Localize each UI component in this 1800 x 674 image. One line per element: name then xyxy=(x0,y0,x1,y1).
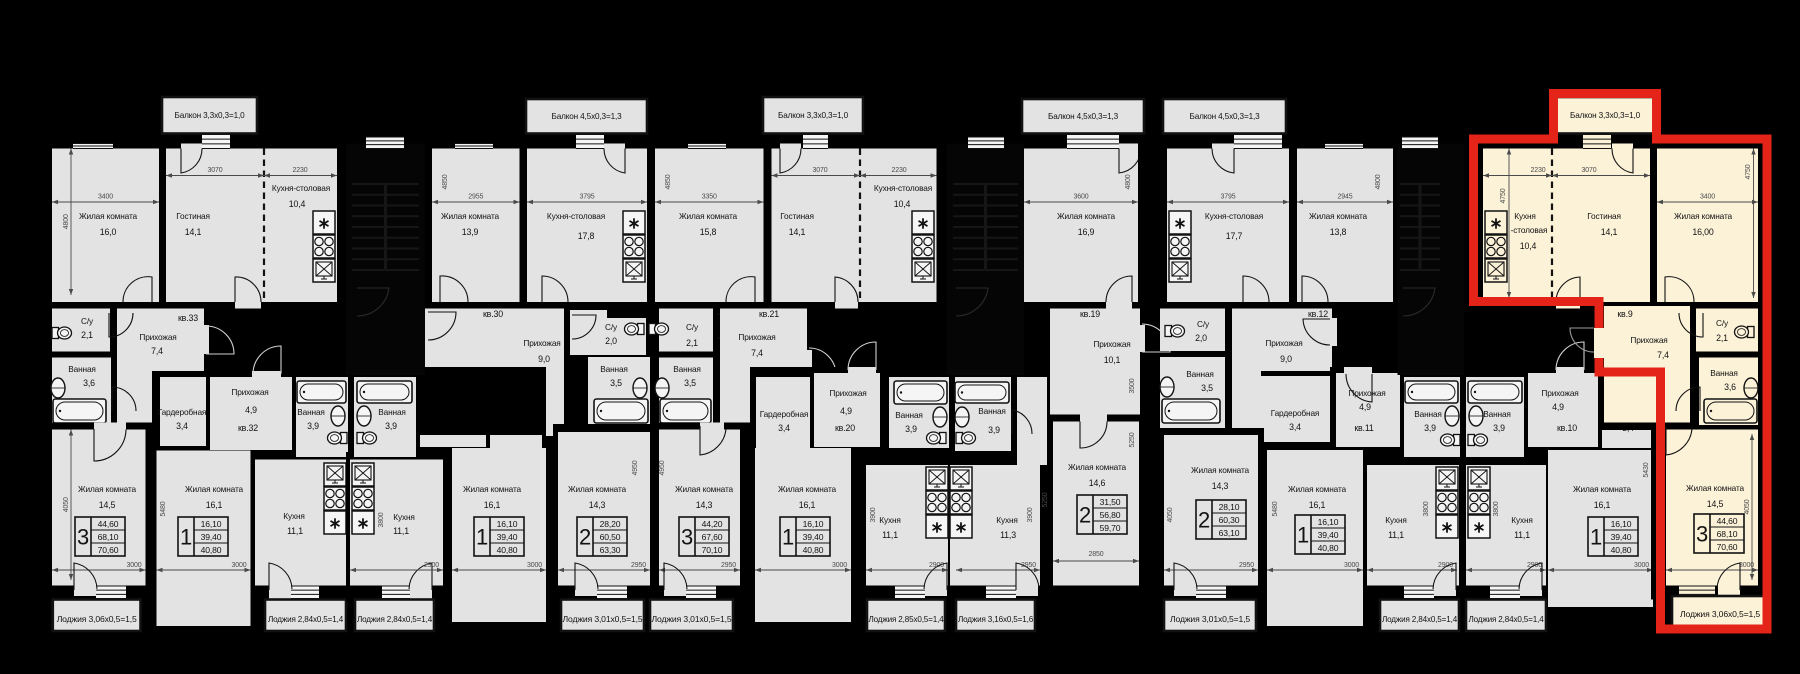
svg-text:3070: 3070 xyxy=(813,167,828,174)
svg-text:Лоджия 3,16х0,5=1,6: Лоджия 3,16х0,5=1,6 xyxy=(958,615,1034,624)
svg-text:С/у: С/у xyxy=(81,316,94,326)
svg-text:7,4: 7,4 xyxy=(1657,350,1669,360)
svg-text:Жилая комната: Жилая комната xyxy=(675,484,734,494)
svg-text:7,4: 7,4 xyxy=(151,346,163,356)
svg-text:Кухня: Кухня xyxy=(996,515,1017,525)
svg-text:Прихожая: Прихожая xyxy=(1630,335,1667,345)
svg-text:Лоджия 3,01х0,5=1,5: Лоджия 3,01х0,5=1,5 xyxy=(563,614,643,624)
svg-text:кв.11: кв.11 xyxy=(1354,423,1374,433)
svg-text:Гостиная: Гостиная xyxy=(176,211,210,221)
svg-text:3,9: 3,9 xyxy=(1493,423,1505,433)
svg-text:2850: 2850 xyxy=(1089,551,1104,558)
svg-text:Гостиная: Гостиная xyxy=(780,211,814,221)
svg-text:14,1: 14,1 xyxy=(1601,227,1618,237)
svg-text:Балкон 3,3х0,3=1,0: Балкон 3,3х0,3=1,0 xyxy=(1570,111,1641,120)
svg-text:4800: 4800 xyxy=(1125,174,1132,189)
svg-text:16,10: 16,10 xyxy=(497,519,518,529)
svg-text:Лоджия 2,84х0,5=1,4: Лоджия 2,84х0,5=1,4 xyxy=(1468,615,1544,624)
svg-text:Жилая комната: Жилая комната xyxy=(463,484,522,494)
svg-text:Жилая комната: Жилая комната xyxy=(1057,211,1116,221)
svg-text:3800: 3800 xyxy=(1423,501,1430,516)
svg-text:Гардеробная: Гардеробная xyxy=(1271,408,1320,418)
svg-text:14,1: 14,1 xyxy=(789,227,806,237)
svg-text:70,60: 70,60 xyxy=(98,545,119,555)
svg-text:10,1: 10,1 xyxy=(1104,355,1121,365)
svg-text:Жилая комната: Жилая комната xyxy=(679,211,738,221)
svg-text:Балкон 4,5х0,3=1,3: Балкон 4,5х0,3=1,3 xyxy=(551,112,622,121)
svg-text:Кухня-столовая: Кухня-столовая xyxy=(272,183,330,193)
svg-text:С/у: С/у xyxy=(686,322,699,332)
svg-text:3,5: 3,5 xyxy=(1201,383,1213,393)
svg-text:3800: 3800 xyxy=(1493,501,1500,516)
svg-text:16,10: 16,10 xyxy=(1611,519,1632,529)
svg-text:Жилая комната: Жилая комната xyxy=(1068,462,1127,472)
svg-text:31,50: 31,50 xyxy=(1100,497,1121,507)
svg-text:Лоджия 2,84х0,5=1,4: Лоджия 2,84х0,5=1,4 xyxy=(1382,615,1458,624)
svg-text:2: 2 xyxy=(1079,503,1091,528)
svg-text:Жилая комната: Жилая комната xyxy=(185,484,244,494)
svg-text:2,1: 2,1 xyxy=(1716,333,1728,343)
svg-text:3900: 3900 xyxy=(1027,507,1034,522)
svg-text:3000: 3000 xyxy=(1634,562,1649,569)
svg-text:3795: 3795 xyxy=(580,194,595,201)
svg-text:17,8: 17,8 xyxy=(578,231,595,241)
svg-text:5250: 5250 xyxy=(1129,432,1136,447)
svg-text:9,0: 9,0 xyxy=(1280,354,1292,364)
svg-text:7,4: 7,4 xyxy=(751,348,763,358)
svg-text:16,1: 16,1 xyxy=(1309,500,1326,510)
svg-text:2955: 2955 xyxy=(468,194,483,201)
svg-text:Жилая комната: Жилая комната xyxy=(778,484,837,494)
svg-text:40,80: 40,80 xyxy=(497,545,518,555)
svg-text:44,20: 44,20 xyxy=(702,519,723,529)
svg-text:4750: 4750 xyxy=(1745,164,1752,179)
svg-text:Лоджия 3,06х0,5=1,5: Лоджия 3,06х0,5=1,5 xyxy=(57,614,137,624)
svg-text:Лоджия 2,84х0,5=1,4: Лоджия 2,84х0,5=1,4 xyxy=(357,615,433,624)
svg-text:3900: 3900 xyxy=(870,507,877,522)
svg-text:60,30: 60,30 xyxy=(1219,515,1240,525)
svg-text:3600: 3600 xyxy=(1074,194,1089,201)
svg-text:3400: 3400 xyxy=(1700,194,1715,201)
svg-text:3795: 3795 xyxy=(1221,194,1236,201)
svg-text:44,60: 44,60 xyxy=(1717,516,1738,526)
svg-text:кв.33: кв.33 xyxy=(178,313,198,323)
svg-text:3350: 3350 xyxy=(702,194,717,201)
svg-text:Прихожая: Прихожая xyxy=(139,332,176,342)
svg-text:11,1: 11,1 xyxy=(287,526,303,536)
svg-text:Лоджия 2,85х0,5=1,4: Лоджия 2,85х0,5=1,4 xyxy=(868,615,944,624)
svg-text:3: 3 xyxy=(1696,522,1708,547)
svg-text:2900: 2900 xyxy=(424,562,439,569)
svg-text:68,10: 68,10 xyxy=(98,532,119,542)
svg-text:Прихожая: Прихожая xyxy=(738,332,775,342)
svg-text:3000: 3000 xyxy=(527,562,542,569)
svg-text:3070: 3070 xyxy=(208,167,223,174)
svg-text:4800: 4800 xyxy=(1375,174,1382,189)
svg-text:Кухня: Кухня xyxy=(283,511,304,521)
svg-text:Кухня: Кухня xyxy=(1385,515,1406,525)
svg-text:40,80: 40,80 xyxy=(803,545,824,555)
svg-text:Ванная: Ванная xyxy=(673,364,701,374)
svg-text:Лоджия 2,84х0,5=1,4: Лоджия 2,84х0,5=1,4 xyxy=(268,615,344,624)
svg-text:14,5: 14,5 xyxy=(1707,499,1724,509)
svg-text:39,40: 39,40 xyxy=(497,532,518,542)
svg-text:Прихожая: Прихожая xyxy=(523,338,560,348)
svg-text:3,5: 3,5 xyxy=(610,378,622,388)
svg-text:39,40: 39,40 xyxy=(1611,532,1632,542)
svg-text:Ванная: Ванная xyxy=(378,407,406,417)
svg-text:Прихожая: Прихожая xyxy=(1541,388,1578,398)
svg-text:3000: 3000 xyxy=(1344,562,1359,569)
svg-text:14,3: 14,3 xyxy=(696,500,713,510)
svg-text:4750: 4750 xyxy=(1500,188,1507,203)
svg-text:Лоджия 3,01х0,5=1,5: Лоджия 3,01х0,5=1,5 xyxy=(652,614,732,624)
svg-text:кв.20: кв.20 xyxy=(835,423,855,433)
svg-text:15,8: 15,8 xyxy=(700,227,717,237)
svg-text:Жилая комната: Жилая комната xyxy=(1686,483,1745,493)
svg-text:16,9: 16,9 xyxy=(1078,227,1095,237)
svg-text:Жилая комната: Жилая комната xyxy=(568,484,627,494)
svg-text:3800: 3800 xyxy=(378,512,385,527)
svg-text:3,4: 3,4 xyxy=(176,421,188,431)
svg-text:4,9: 4,9 xyxy=(245,405,257,415)
svg-text:11,1: 11,1 xyxy=(882,530,898,540)
svg-text:2230: 2230 xyxy=(1531,167,1546,174)
svg-text:2945: 2945 xyxy=(1338,194,1353,201)
svg-text:16,1: 16,1 xyxy=(799,500,816,510)
svg-text:3,9: 3,9 xyxy=(307,421,319,431)
svg-text:1: 1 xyxy=(476,525,488,550)
svg-text:9,0: 9,0 xyxy=(538,354,550,364)
svg-text:кв.12: кв.12 xyxy=(1308,309,1328,319)
svg-text:3: 3 xyxy=(77,525,89,550)
svg-text:67,60: 67,60 xyxy=(702,532,723,542)
svg-text:3400: 3400 xyxy=(98,194,113,201)
svg-text:3,4: 3,4 xyxy=(1289,422,1301,432)
svg-text:17,7: 17,7 xyxy=(1226,231,1243,241)
svg-text:-столовая: -столовая xyxy=(1511,225,1548,235)
svg-text:С/у: С/у xyxy=(1716,318,1729,328)
svg-text:Ванная: Ванная xyxy=(1710,368,1738,378)
svg-text:3,9: 3,9 xyxy=(905,424,917,434)
svg-text:4950: 4950 xyxy=(632,460,639,475)
svg-text:4800: 4800 xyxy=(63,214,70,229)
svg-text:16,1: 16,1 xyxy=(484,500,501,510)
svg-text:Ванная: Ванная xyxy=(1414,409,1442,419)
svg-text:2900: 2900 xyxy=(1438,562,1453,569)
svg-text:10,4: 10,4 xyxy=(894,199,911,209)
svg-text:13,8: 13,8 xyxy=(1330,227,1347,237)
svg-text:кв.10: кв.10 xyxy=(1557,423,1577,433)
svg-text:3000: 3000 xyxy=(832,562,847,569)
svg-text:1: 1 xyxy=(1297,523,1309,548)
svg-text:Кухня: Кухня xyxy=(1511,515,1532,525)
svg-text:Жилая комната: Жилая комната xyxy=(1309,211,1368,221)
svg-text:39,40: 39,40 xyxy=(803,532,824,542)
svg-text:2950: 2950 xyxy=(631,562,646,569)
svg-text:Прихожая: Прихожая xyxy=(1093,339,1130,349)
svg-text:13,9: 13,9 xyxy=(462,227,479,237)
svg-text:3000: 3000 xyxy=(232,562,247,569)
svg-text:3,9: 3,9 xyxy=(1424,423,1436,433)
svg-text:2,0: 2,0 xyxy=(1195,333,1207,343)
svg-text:5250: 5250 xyxy=(1042,492,1049,507)
svg-text:Ванная: Ванная xyxy=(978,406,1006,416)
svg-text:4,9: 4,9 xyxy=(1552,402,1564,412)
svg-text:3,5: 3,5 xyxy=(684,378,696,388)
svg-text:1: 1 xyxy=(1590,525,1602,550)
svg-text:Лоджия 3,06х0,5=1,5: Лоджия 3,06х0,5=1,5 xyxy=(1680,609,1760,619)
svg-text:14,6: 14,6 xyxy=(1089,478,1106,488)
svg-text:11,1: 11,1 xyxy=(1514,530,1530,540)
svg-text:4050: 4050 xyxy=(1744,499,1751,514)
svg-text:1: 1 xyxy=(180,525,192,550)
svg-text:Ванная: Ванная xyxy=(1483,409,1511,419)
svg-text:С/у: С/у xyxy=(605,322,618,332)
svg-text:Жилая комната: Жилая комната xyxy=(78,484,137,494)
svg-text:5480: 5480 xyxy=(1272,501,1279,516)
svg-text:14,3: 14,3 xyxy=(589,500,606,510)
svg-text:40,80: 40,80 xyxy=(1611,545,1632,555)
svg-text:10,4: 10,4 xyxy=(1520,241,1537,251)
svg-text:10,4: 10,4 xyxy=(289,199,306,209)
svg-text:4850: 4850 xyxy=(442,174,449,189)
svg-text:14,1: 14,1 xyxy=(185,227,202,237)
svg-text:2230: 2230 xyxy=(892,167,907,174)
svg-text:Балкон 3,3х0,3=1,0: Балкон 3,3х0,3=1,0 xyxy=(174,111,245,120)
svg-text:Гардеробная: Гардеробная xyxy=(760,409,809,419)
svg-text:40,80: 40,80 xyxy=(201,545,222,555)
svg-text:14,5: 14,5 xyxy=(99,500,116,510)
svg-text:Жилая комната: Жилая комната xyxy=(1674,211,1733,221)
svg-text:5480: 5480 xyxy=(160,501,167,516)
svg-text:3: 3 xyxy=(681,525,693,550)
svg-text:2,1: 2,1 xyxy=(686,338,698,348)
svg-text:2,0: 2,0 xyxy=(605,336,617,346)
svg-text:Ванная: Ванная xyxy=(1186,369,1214,379)
svg-text:Кухня-столовая: Кухня-столовая xyxy=(547,211,605,221)
svg-text:Жилая комната: Жилая комната xyxy=(1191,465,1250,475)
svg-text:11,3: 11,3 xyxy=(1000,530,1016,540)
svg-text:3,9: 3,9 xyxy=(385,421,397,431)
svg-text:3,9: 3,9 xyxy=(988,425,1000,435)
svg-text:Кухня: Кухня xyxy=(879,515,900,525)
svg-text:40,80: 40,80 xyxy=(1318,543,1339,553)
svg-text:16,1: 16,1 xyxy=(1594,500,1611,510)
svg-text:39,40: 39,40 xyxy=(201,532,222,542)
svg-text:16,10: 16,10 xyxy=(201,519,222,529)
svg-text:Ванная: Ванная xyxy=(895,410,923,420)
svg-text:63,10: 63,10 xyxy=(1219,528,1240,538)
svg-text:1: 1 xyxy=(782,525,794,550)
svg-text:16,1: 16,1 xyxy=(206,500,223,510)
svg-text:44,60: 44,60 xyxy=(98,519,119,529)
svg-text:63,30: 63,30 xyxy=(600,545,621,555)
svg-text:2: 2 xyxy=(579,525,591,550)
svg-text:28,10: 28,10 xyxy=(1219,502,1240,512)
svg-text:11,1: 11,1 xyxy=(1388,530,1404,540)
svg-text:Жилая комната: Жилая комната xyxy=(1288,484,1347,494)
svg-text:Ванная: Ванная xyxy=(68,364,96,374)
svg-text:2950: 2950 xyxy=(1239,562,1254,569)
svg-text:Прихожая: Прихожая xyxy=(231,387,268,397)
svg-text:Кухня: Кухня xyxy=(1514,211,1535,221)
svg-text:Прихожая: Прихожая xyxy=(1265,338,1302,348)
svg-text:4050: 4050 xyxy=(1167,507,1174,522)
svg-text:Ванная: Ванная xyxy=(600,364,628,374)
svg-text:Гардеробная: Гардеробная xyxy=(158,407,207,417)
svg-text:70,10: 70,10 xyxy=(702,545,723,555)
svg-text:Балкон 3,3х0,3=1,0: Балкон 3,3х0,3=1,0 xyxy=(778,111,849,120)
svg-text:68,10: 68,10 xyxy=(1717,529,1738,539)
svg-text:16,10: 16,10 xyxy=(803,519,824,529)
svg-text:16,0: 16,0 xyxy=(100,227,117,237)
svg-text:Балкон 4,5х0,3=1,3: Балкон 4,5х0,3=1,3 xyxy=(1189,112,1260,121)
svg-text:кв.19: кв.19 xyxy=(1080,309,1100,319)
svg-text:кв.9: кв.9 xyxy=(1617,309,1633,319)
svg-text:3,4: 3,4 xyxy=(778,423,790,433)
svg-text:Балкон 4,5х0,3=1,3: Балкон 4,5х0,3=1,3 xyxy=(1048,112,1119,121)
svg-text:16,10: 16,10 xyxy=(1318,517,1339,527)
svg-text:Ванная: Ванная xyxy=(297,407,325,417)
svg-text:2900: 2900 xyxy=(929,562,944,569)
svg-text:3500: 3500 xyxy=(1129,378,1136,393)
svg-text:Прихожая: Прихожая xyxy=(829,388,866,398)
svg-text:59,70: 59,70 xyxy=(1100,523,1121,533)
svg-text:кв.30: кв.30 xyxy=(483,309,503,319)
svg-text:28,20: 28,20 xyxy=(600,519,621,529)
svg-text:Кухня-столовая: Кухня-столовая xyxy=(874,183,932,193)
svg-text:4950: 4950 xyxy=(659,460,666,475)
svg-text:кв.21: кв.21 xyxy=(759,309,779,319)
svg-text:70,60: 70,60 xyxy=(1717,542,1738,552)
svg-text:2: 2 xyxy=(1198,508,1210,533)
svg-text:Кухня-столовая: Кухня-столовая xyxy=(1205,211,1263,221)
svg-text:Жилая комната: Жилая комната xyxy=(441,211,500,221)
svg-text:4,9: 4,9 xyxy=(840,406,852,416)
svg-text:2950: 2950 xyxy=(721,562,736,569)
svg-text:Лоджия 3,01х0,5=1,5: Лоджия 3,01х0,5=1,5 xyxy=(1170,614,1250,624)
svg-text:39,40: 39,40 xyxy=(1318,530,1339,540)
svg-text:Гостиная: Гостиная xyxy=(1587,211,1621,221)
svg-text:Жилая комната: Жилая комната xyxy=(1573,484,1632,494)
svg-text:3,6: 3,6 xyxy=(83,378,95,388)
svg-text:3,6: 3,6 xyxy=(1724,382,1736,392)
svg-text:2230: 2230 xyxy=(293,167,308,174)
svg-text:3070: 3070 xyxy=(1582,167,1597,174)
svg-text:60,50: 60,50 xyxy=(600,532,621,542)
svg-text:4050: 4050 xyxy=(63,497,70,512)
svg-text:4,9: 4,9 xyxy=(1359,402,1371,412)
svg-text:56,80: 56,80 xyxy=(1100,510,1121,520)
svg-text:Жилая комната: Жилая комната xyxy=(79,211,138,221)
svg-text:16,00: 16,00 xyxy=(1692,227,1714,237)
svg-text:11,1: 11,1 xyxy=(393,526,409,536)
svg-text:кв.32: кв.32 xyxy=(238,423,258,433)
svg-text:3000: 3000 xyxy=(127,562,142,569)
svg-text:2,1: 2,1 xyxy=(81,330,93,340)
svg-text:4850: 4850 xyxy=(665,174,672,189)
svg-text:5430: 5430 xyxy=(1643,462,1650,477)
svg-text:С/у: С/у xyxy=(1197,319,1210,329)
svg-text:Кухня: Кухня xyxy=(393,512,414,522)
svg-text:14,3: 14,3 xyxy=(1212,481,1229,491)
